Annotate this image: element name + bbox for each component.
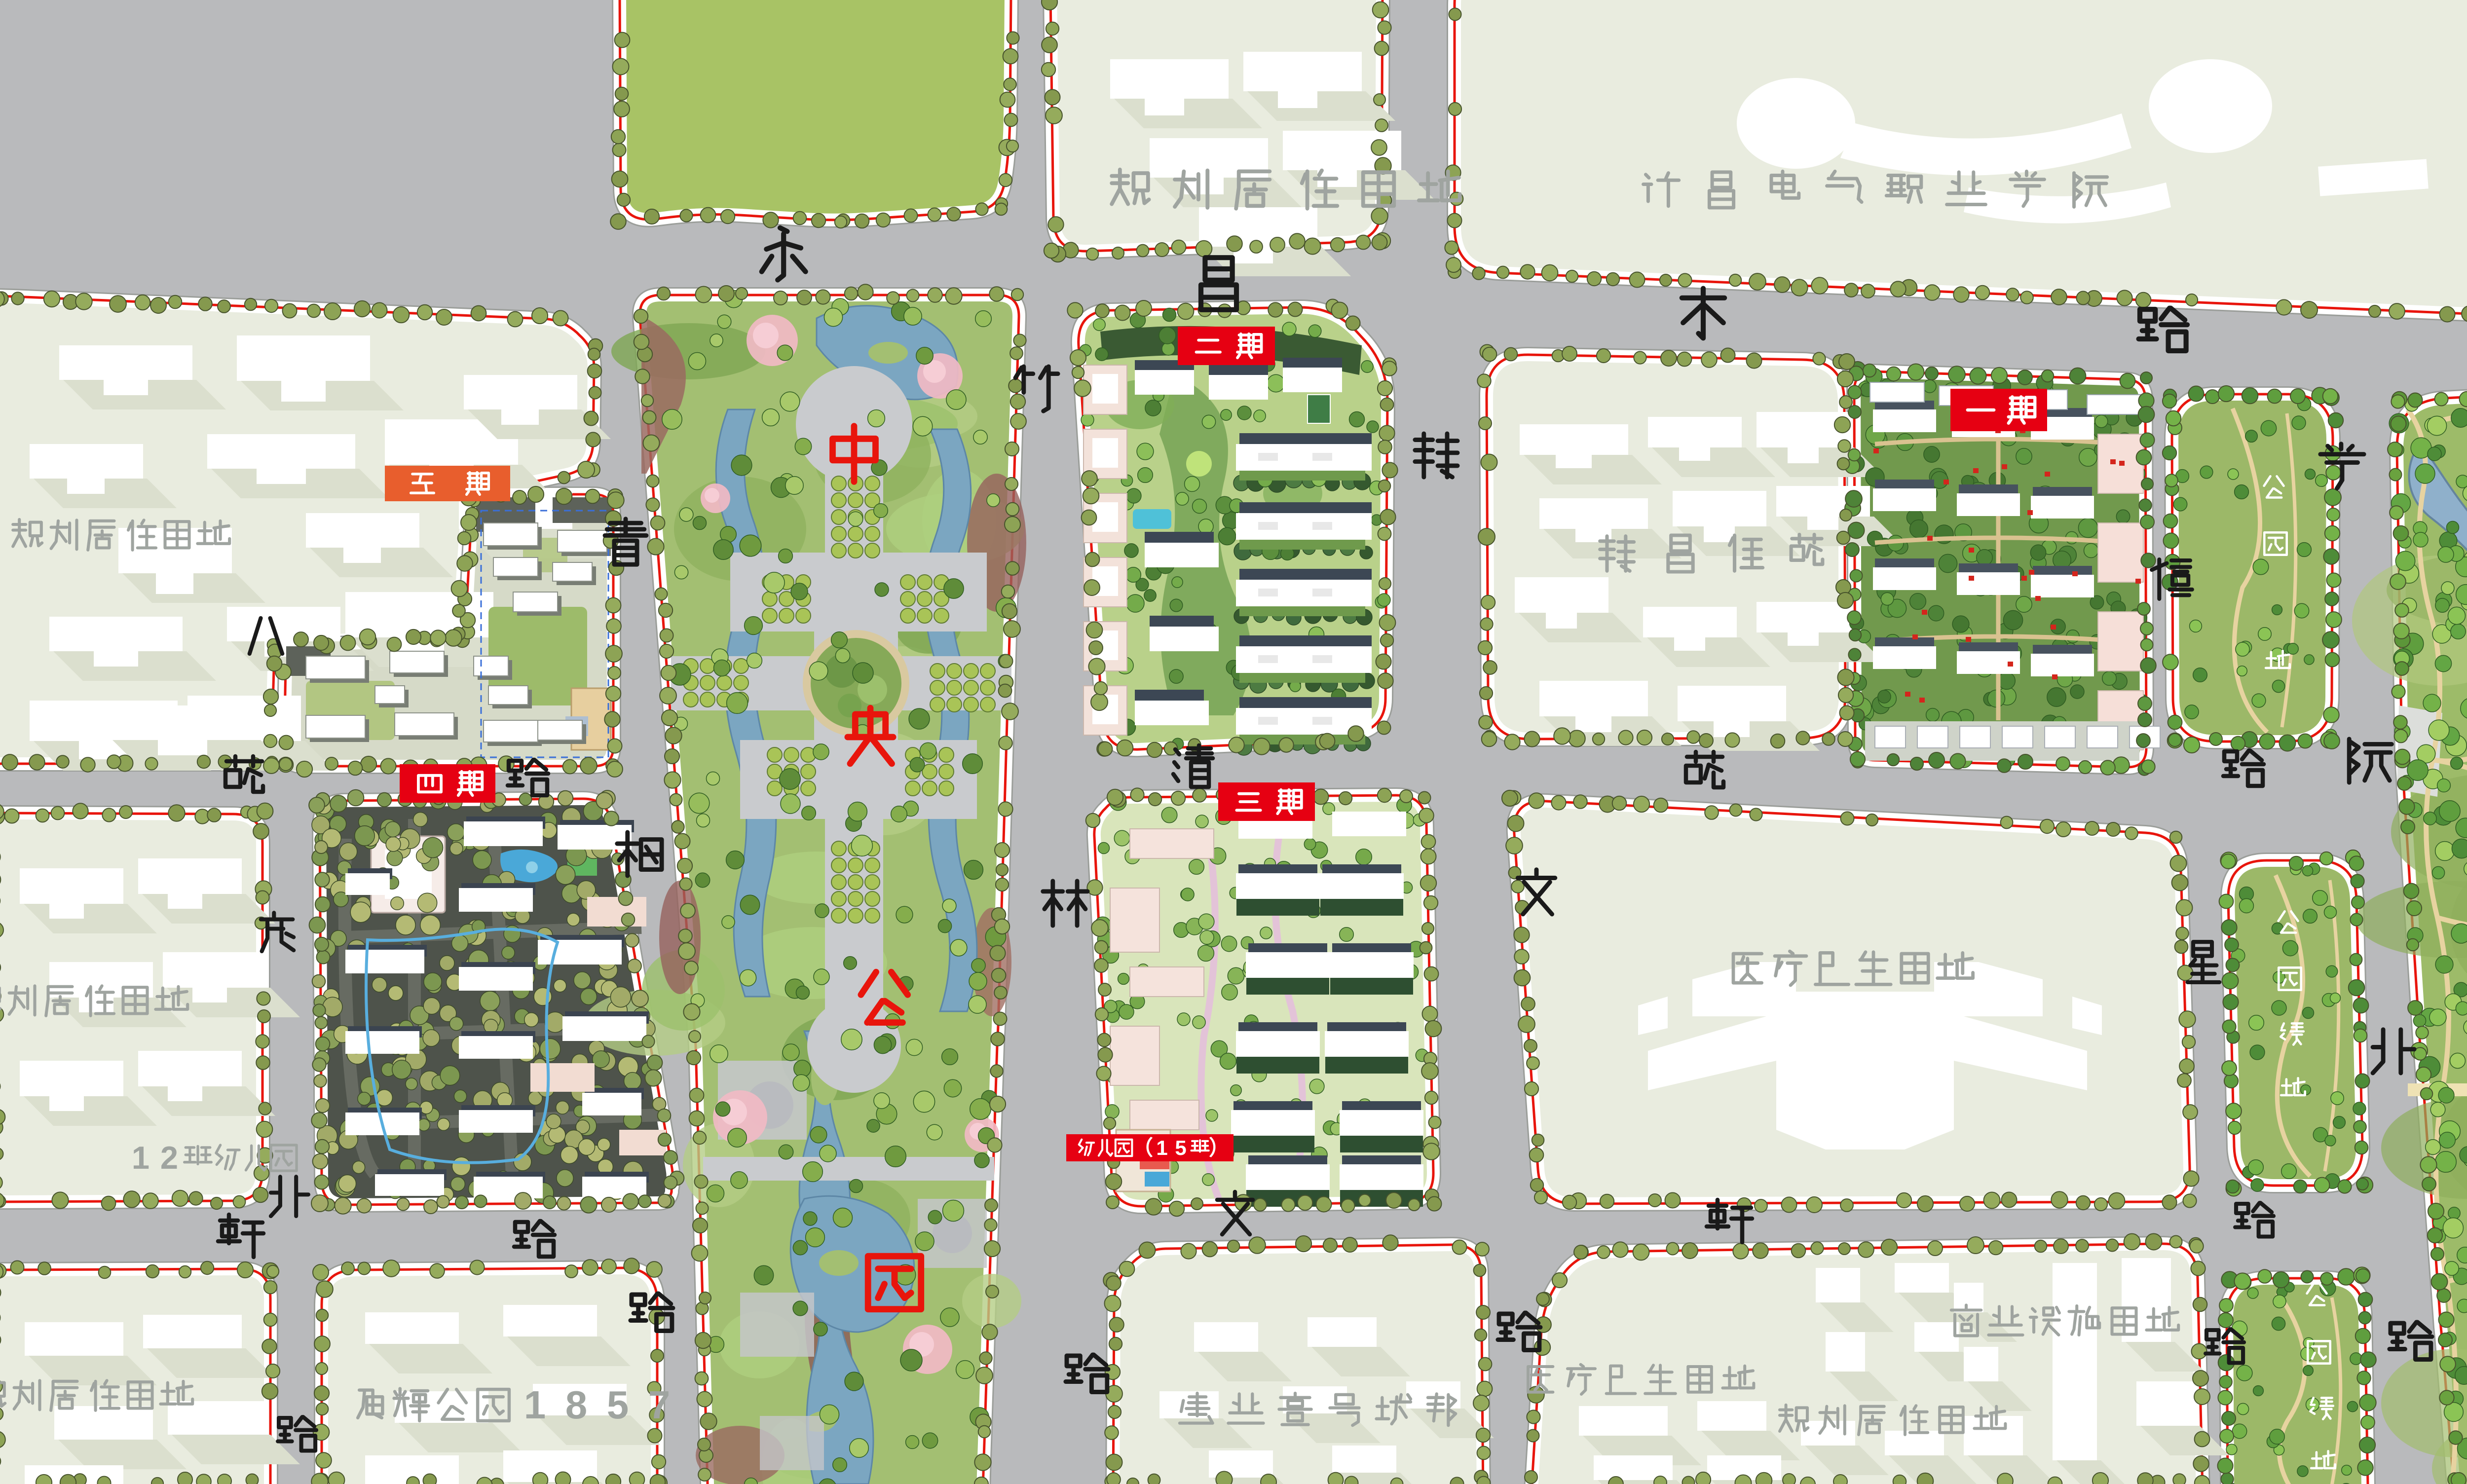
svg-text:（: （ <box>1132 1136 1153 1159</box>
svg-text:5: 5 <box>607 1383 629 1427</box>
svg-text:1: 1 <box>524 1383 546 1427</box>
svg-text:）: ） <box>1209 1136 1230 1159</box>
svg-text:7: 7 <box>648 1383 671 1427</box>
svg-text:2: 2 <box>160 1140 178 1176</box>
svg-text:5: 5 <box>1175 1136 1186 1159</box>
svg-text:1: 1 <box>132 1140 150 1176</box>
svg-text:1: 1 <box>1156 1136 1167 1159</box>
svg-text:8: 8 <box>565 1383 588 1427</box>
